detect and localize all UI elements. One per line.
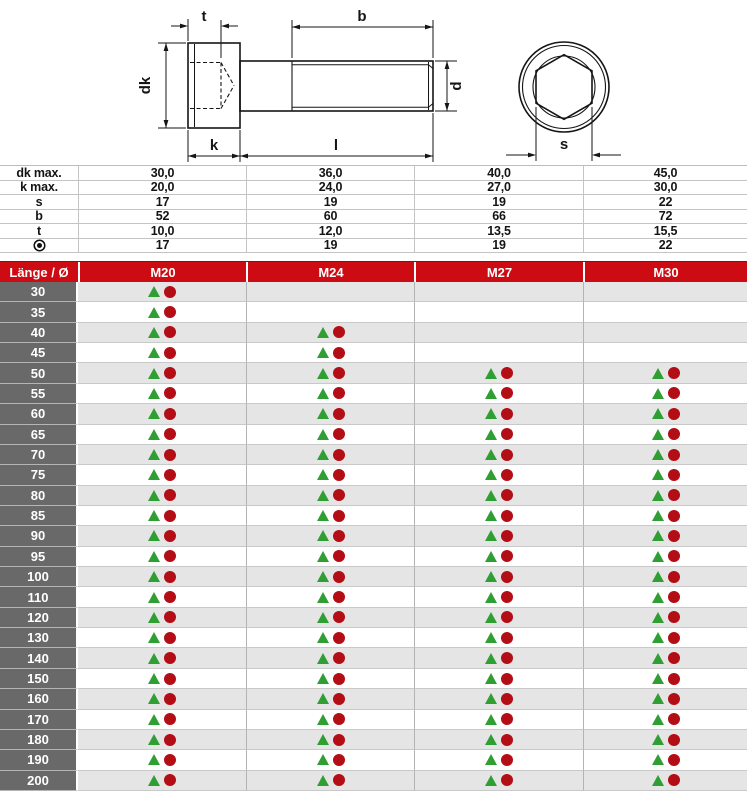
- availability-cell: [78, 587, 246, 607]
- circle-availability-icon: [164, 408, 176, 420]
- availability-row: 70: [0, 445, 747, 465]
- circle-availability-icon: [501, 693, 513, 705]
- circle-availability-icon: [164, 550, 176, 562]
- triangle-availability-icon: [148, 734, 160, 745]
- availability-table: 3035404550556065707580859095100110120130…: [0, 282, 747, 791]
- circle-availability-icon: [164, 367, 176, 379]
- availability-cell: [414, 710, 583, 730]
- triangle-availability-icon: [485, 530, 497, 541]
- dimension-dk: dk: [137, 43, 186, 128]
- availability-cell: [78, 404, 246, 424]
- circle-availability-icon: [501, 632, 513, 644]
- triangle-availability-icon: [652, 612, 664, 623]
- triangle-availability-icon: [485, 693, 497, 704]
- dim-label-b: b: [357, 8, 366, 25]
- length-cell: 45: [0, 343, 78, 363]
- availability-cell: [414, 547, 583, 567]
- spec-row-label: b: [0, 210, 78, 224]
- availability-cell: [583, 363, 747, 383]
- availability-cell: [78, 689, 246, 709]
- circle-availability-icon: [164, 530, 176, 542]
- circle-availability-icon: [164, 469, 176, 481]
- availability-cell: [78, 465, 246, 485]
- triangle-availability-icon: [485, 632, 497, 643]
- circle-availability-icon: [333, 632, 345, 644]
- availability-row: 180: [0, 730, 747, 750]
- triangle-availability-icon: [317, 490, 329, 501]
- triangle-availability-icon: [485, 490, 497, 501]
- circle-availability-icon: [501, 673, 513, 685]
- availability-cell: [246, 567, 414, 587]
- length-cell: 130: [0, 628, 78, 648]
- circle-availability-icon: [668, 713, 680, 725]
- triangle-availability-icon: [148, 347, 160, 358]
- triangle-availability-icon: [148, 408, 160, 419]
- triangle-availability-icon: [317, 653, 329, 664]
- screw-head: [188, 43, 240, 128]
- circle-availability-icon: [164, 754, 176, 766]
- triangle-availability-icon: [148, 754, 160, 765]
- circle-availability-icon: [668, 652, 680, 664]
- triangle-availability-icon: [485, 510, 497, 521]
- availability-cell: [246, 343, 414, 363]
- circle-availability-icon: [333, 571, 345, 583]
- availability-row: 35: [0, 302, 747, 322]
- circle-availability-icon: [501, 408, 513, 420]
- spec-value-cell: 22: [583, 239, 747, 253]
- triangle-availability-icon: [652, 388, 664, 399]
- size-column-header: M30: [583, 262, 747, 282]
- hex-socket-outline: [536, 55, 592, 120]
- availability-cell: [246, 771, 414, 791]
- triangle-availability-icon: [485, 754, 497, 765]
- circle-availability-icon: [668, 367, 680, 379]
- availability-cell: [246, 689, 414, 709]
- dim-label-d: d: [448, 81, 465, 90]
- circle-availability-icon: [501, 367, 513, 379]
- size-header-label: Länge / Ø: [0, 262, 78, 282]
- triangle-availability-icon: [485, 449, 497, 460]
- availability-cell: [583, 282, 747, 302]
- length-cell: 80: [0, 486, 78, 506]
- spec-value-cell: 19: [414, 195, 583, 209]
- availability-cell: [78, 669, 246, 689]
- triangle-availability-icon: [485, 673, 497, 684]
- spec-value-cell: 10,0: [78, 224, 246, 238]
- availability-cell: [583, 689, 747, 709]
- triangle-availability-icon: [652, 449, 664, 460]
- circle-availability-icon: [164, 774, 176, 786]
- availability-cell: [414, 486, 583, 506]
- spec-row: s17191922: [0, 195, 747, 210]
- screw-datasheet-page: t b dk d: [0, 0, 747, 791]
- length-cell: 190: [0, 750, 78, 770]
- length-cell: 85: [0, 506, 78, 526]
- circle-availability-icon: [501, 734, 513, 746]
- length-cell: 90: [0, 526, 78, 546]
- availability-cell: [583, 567, 747, 587]
- availability-row: 30: [0, 282, 747, 302]
- availability-cell: [414, 404, 583, 424]
- spec-row-label: s: [0, 195, 78, 209]
- circle-availability-icon: [164, 571, 176, 583]
- spec-row: t10,012,013,515,5: [0, 224, 747, 239]
- availability-cell: [583, 710, 747, 730]
- circle-availability-icon: [668, 530, 680, 542]
- triangle-availability-icon: [317, 734, 329, 745]
- circle-availability-icon: [333, 530, 345, 542]
- dimension-b: b: [292, 8, 433, 58]
- spec-value-cell: 72: [583, 210, 747, 224]
- availability-cell: [414, 730, 583, 750]
- availability-cell: [583, 302, 747, 322]
- availability-cell: [414, 425, 583, 445]
- availability-cell: [246, 282, 414, 302]
- circle-availability-icon: [333, 489, 345, 501]
- triangle-availability-icon: [148, 775, 160, 786]
- availability-row: 95: [0, 547, 747, 567]
- size-column-header: M20: [78, 262, 246, 282]
- spec-value-cell: 66: [414, 210, 583, 224]
- availability-cell: [414, 465, 583, 485]
- triangle-availability-icon: [148, 551, 160, 562]
- circle-availability-icon: [668, 734, 680, 746]
- availability-cell: [246, 547, 414, 567]
- availability-row: 40: [0, 323, 747, 343]
- availability-cell: [583, 587, 747, 607]
- availability-cell: [583, 669, 747, 689]
- triangle-availability-icon: [485, 714, 497, 725]
- availability-row: 190: [0, 750, 747, 770]
- dimension-k: k: [188, 130, 240, 162]
- spec-row: dk max.30,036,040,045,0: [0, 166, 747, 181]
- availability-cell: [78, 384, 246, 404]
- circle-availability-icon: [668, 571, 680, 583]
- availability-cell: [414, 302, 583, 322]
- technical-drawing: t b dk d: [0, 0, 747, 164]
- availability-cell: [246, 710, 414, 730]
- triangle-availability-icon: [148, 612, 160, 623]
- dimension-d: d: [435, 61, 465, 111]
- triangle-availability-icon: [485, 551, 497, 562]
- triangle-availability-icon: [148, 429, 160, 440]
- dimension-t: t: [171, 8, 238, 58]
- spec-value-cell: 17: [78, 239, 246, 253]
- spec-value-cell: 22: [583, 195, 747, 209]
- circle-availability-icon: [668, 632, 680, 644]
- circle-availability-icon: [164, 286, 176, 298]
- length-cell: 170: [0, 710, 78, 730]
- length-cell: 50: [0, 363, 78, 383]
- length-cell: 65: [0, 425, 78, 445]
- size-column-header: M27: [414, 262, 583, 282]
- triangle-availability-icon: [148, 368, 160, 379]
- triangle-availability-icon: [652, 653, 664, 664]
- triangle-availability-icon: [485, 469, 497, 480]
- head-rim-circle: [523, 46, 606, 129]
- triangle-availability-icon: [148, 307, 160, 318]
- availability-cell: [246, 465, 414, 485]
- availability-cell: [583, 343, 747, 363]
- length-cell: 75: [0, 465, 78, 485]
- length-cell: 100: [0, 567, 78, 587]
- triangle-availability-icon: [652, 408, 664, 419]
- triangle-availability-icon: [317, 551, 329, 562]
- availability-cell: [246, 648, 414, 668]
- hex-socket-hidden-lines: [190, 63, 234, 109]
- triangle-availability-icon: [317, 673, 329, 684]
- availability-cell: [414, 526, 583, 546]
- triangle-availability-icon: [148, 388, 160, 399]
- spec-value-cell: 24,0: [246, 181, 414, 195]
- circle-availability-icon: [164, 734, 176, 746]
- circle-availability-icon: [501, 774, 513, 786]
- triangle-availability-icon: [485, 408, 497, 419]
- length-cell: 35: [0, 302, 78, 322]
- spec-value-cell: 60: [246, 210, 414, 224]
- dim-label-k: k: [210, 137, 219, 154]
- circle-availability-icon: [333, 367, 345, 379]
- circle-availability-icon: [164, 489, 176, 501]
- spec-value-cell: 30,0: [78, 166, 246, 180]
- triangle-availability-icon: [317, 612, 329, 623]
- availability-cell: [583, 425, 747, 445]
- circle-availability-icon: [164, 510, 176, 522]
- length-cell: 150: [0, 669, 78, 689]
- availability-cell: [78, 486, 246, 506]
- triangle-availability-icon: [317, 469, 329, 480]
- triangle-availability-icon: [485, 592, 497, 603]
- triangle-availability-icon: [485, 734, 497, 745]
- spec-row-label: [0, 239, 78, 253]
- circle-availability-icon: [501, 469, 513, 481]
- circle-availability-icon: [333, 611, 345, 623]
- dim-label-l: l: [334, 137, 338, 154]
- availability-cell: [246, 363, 414, 383]
- availability-cell: [414, 384, 583, 404]
- availability-row: 120: [0, 608, 747, 628]
- spec-value-cell: 40,0: [414, 166, 583, 180]
- circle-availability-icon: [668, 469, 680, 481]
- availability-row: 60: [0, 404, 747, 424]
- availability-row: 45: [0, 343, 747, 363]
- availability-cell: [414, 363, 583, 383]
- availability-cell: [246, 486, 414, 506]
- dimension-l: l: [240, 113, 433, 162]
- spec-value-cell: 19: [246, 195, 414, 209]
- availability-cell: [246, 587, 414, 607]
- circle-availability-icon: [333, 387, 345, 399]
- triangle-availability-icon: [148, 530, 160, 541]
- availability-cell: [78, 567, 246, 587]
- availability-cell: [78, 547, 246, 567]
- circle-availability-icon: [333, 469, 345, 481]
- circle-availability-icon: [164, 387, 176, 399]
- triangle-availability-icon: [317, 714, 329, 725]
- socket-drill-circle: [533, 56, 595, 118]
- spec-value-cell: 15,5: [583, 224, 747, 238]
- circle-availability-icon: [333, 774, 345, 786]
- availability-cell: [78, 608, 246, 628]
- circle-availability-icon: [164, 326, 176, 338]
- circle-availability-icon: [501, 754, 513, 766]
- triangle-availability-icon: [317, 530, 329, 541]
- triangle-availability-icon: [485, 612, 497, 623]
- triangle-availability-icon: [652, 673, 664, 684]
- length-cell: 140: [0, 648, 78, 668]
- circle-availability-icon: [501, 510, 513, 522]
- availability-row: 50: [0, 363, 747, 383]
- circle-availability-icon: [333, 326, 345, 338]
- circle-availability-icon: [501, 713, 513, 725]
- circle-availability-icon: [668, 550, 680, 562]
- triangle-availability-icon: [317, 571, 329, 582]
- triangle-availability-icon: [317, 693, 329, 704]
- availability-cell: [78, 771, 246, 791]
- triangle-availability-icon: [148, 653, 160, 664]
- triangle-availability-icon: [652, 571, 664, 582]
- availability-cell: [246, 445, 414, 465]
- triangle-availability-icon: [652, 632, 664, 643]
- screw-shank: [240, 61, 433, 111]
- availability-row: 100: [0, 567, 747, 587]
- spec-value-cell: 36,0: [246, 166, 414, 180]
- availability-cell: [414, 669, 583, 689]
- circle-availability-icon: [164, 306, 176, 318]
- triangle-availability-icon: [317, 347, 329, 358]
- circle-availability-icon: [668, 693, 680, 705]
- length-cell: 40: [0, 323, 78, 343]
- length-cell: 120: [0, 608, 78, 628]
- triangle-availability-icon: [485, 368, 497, 379]
- length-cell: 70: [0, 445, 78, 465]
- circle-availability-icon: [501, 550, 513, 562]
- availability-cell: [583, 771, 747, 791]
- availability-row: 80: [0, 486, 747, 506]
- availability-cell: [414, 771, 583, 791]
- availability-cell: [583, 730, 747, 750]
- circle-availability-icon: [668, 489, 680, 501]
- triangle-availability-icon: [317, 754, 329, 765]
- triangle-availability-icon: [652, 714, 664, 725]
- availability-cell: [414, 587, 583, 607]
- availability-cell: [414, 282, 583, 302]
- circle-availability-icon: [333, 347, 345, 359]
- length-cell: 160: [0, 689, 78, 709]
- availability-cell: [78, 648, 246, 668]
- dim-label-s: s: [560, 136, 568, 153]
- availability-cell: [246, 302, 414, 322]
- circle-availability-icon: [164, 428, 176, 440]
- circle-availability-icon: [668, 408, 680, 420]
- availability-cell: [78, 363, 246, 383]
- triangle-availability-icon: [652, 592, 664, 603]
- circle-availability-icon: [501, 611, 513, 623]
- circle-availability-icon: [501, 489, 513, 501]
- circle-availability-icon: [668, 449, 680, 461]
- circle-availability-icon: [668, 428, 680, 440]
- availability-cell: [78, 710, 246, 730]
- circle-availability-icon: [164, 449, 176, 461]
- fisheye-icon: [37, 243, 42, 248]
- length-cell: 200: [0, 771, 78, 791]
- circle-availability-icon: [333, 449, 345, 461]
- availability-row: 150: [0, 669, 747, 689]
- circle-availability-icon: [164, 347, 176, 359]
- circle-availability-icon: [668, 510, 680, 522]
- length-cell: 30: [0, 282, 78, 302]
- dimension-s: s: [506, 107, 621, 161]
- availability-row: 65: [0, 425, 747, 445]
- spec-value-cell: 19: [246, 239, 414, 253]
- availability-row: 130: [0, 628, 747, 648]
- triangle-availability-icon: [148, 592, 160, 603]
- availability-cell: [414, 648, 583, 668]
- availability-cell: [246, 669, 414, 689]
- triangle-availability-icon: [148, 571, 160, 582]
- availability-cell: [246, 425, 414, 445]
- thread-section: [292, 62, 433, 111]
- triangle-availability-icon: [652, 775, 664, 786]
- length-cell: 110: [0, 587, 78, 607]
- triangle-availability-icon: [148, 469, 160, 480]
- circle-availability-icon: [501, 652, 513, 664]
- circle-availability-icon: [164, 611, 176, 623]
- triangle-availability-icon: [652, 754, 664, 765]
- dim-label-dk: dk: [137, 76, 154, 94]
- spec-value-cell: 17: [78, 195, 246, 209]
- circle-availability-icon: [333, 754, 345, 766]
- availability-cell: [583, 547, 747, 567]
- availability-cell: [78, 750, 246, 770]
- availability-cell: [583, 628, 747, 648]
- triangle-availability-icon: [148, 286, 160, 297]
- length-cell: 180: [0, 730, 78, 750]
- availability-cell: [246, 506, 414, 526]
- spec-value-cell: 52: [78, 210, 246, 224]
- triangle-availability-icon: [652, 510, 664, 521]
- length-cell: 60: [0, 404, 78, 424]
- size-header-row: Länge / ØM20M24M27M30: [0, 261, 747, 282]
- triangle-availability-icon: [317, 388, 329, 399]
- circle-availability-icon: [164, 632, 176, 644]
- circle-availability-icon: [333, 673, 345, 685]
- circle-availability-icon: [164, 591, 176, 603]
- triangle-availability-icon: [148, 632, 160, 643]
- spec-value-cell: 30,0: [583, 181, 747, 195]
- circle-availability-icon: [501, 530, 513, 542]
- availability-row: 160: [0, 689, 747, 709]
- triangle-availability-icon: [652, 490, 664, 501]
- spec-value-cell: 19: [414, 239, 583, 253]
- circle-availability-icon: [333, 652, 345, 664]
- availability-cell: [246, 404, 414, 424]
- triangle-availability-icon: [148, 714, 160, 725]
- availability-cell: [583, 486, 747, 506]
- availability-cell: [246, 628, 414, 648]
- availability-cell: [583, 648, 747, 668]
- availability-cell: [583, 506, 747, 526]
- availability-cell: [414, 750, 583, 770]
- triangle-availability-icon: [652, 693, 664, 704]
- circle-availability-icon: [668, 673, 680, 685]
- circle-availability-icon: [501, 387, 513, 399]
- triangle-availability-icon: [317, 408, 329, 419]
- triangle-availability-icon: [652, 734, 664, 745]
- length-cell: 95: [0, 547, 78, 567]
- circle-availability-icon: [668, 591, 680, 603]
- availability-row: 170: [0, 710, 747, 730]
